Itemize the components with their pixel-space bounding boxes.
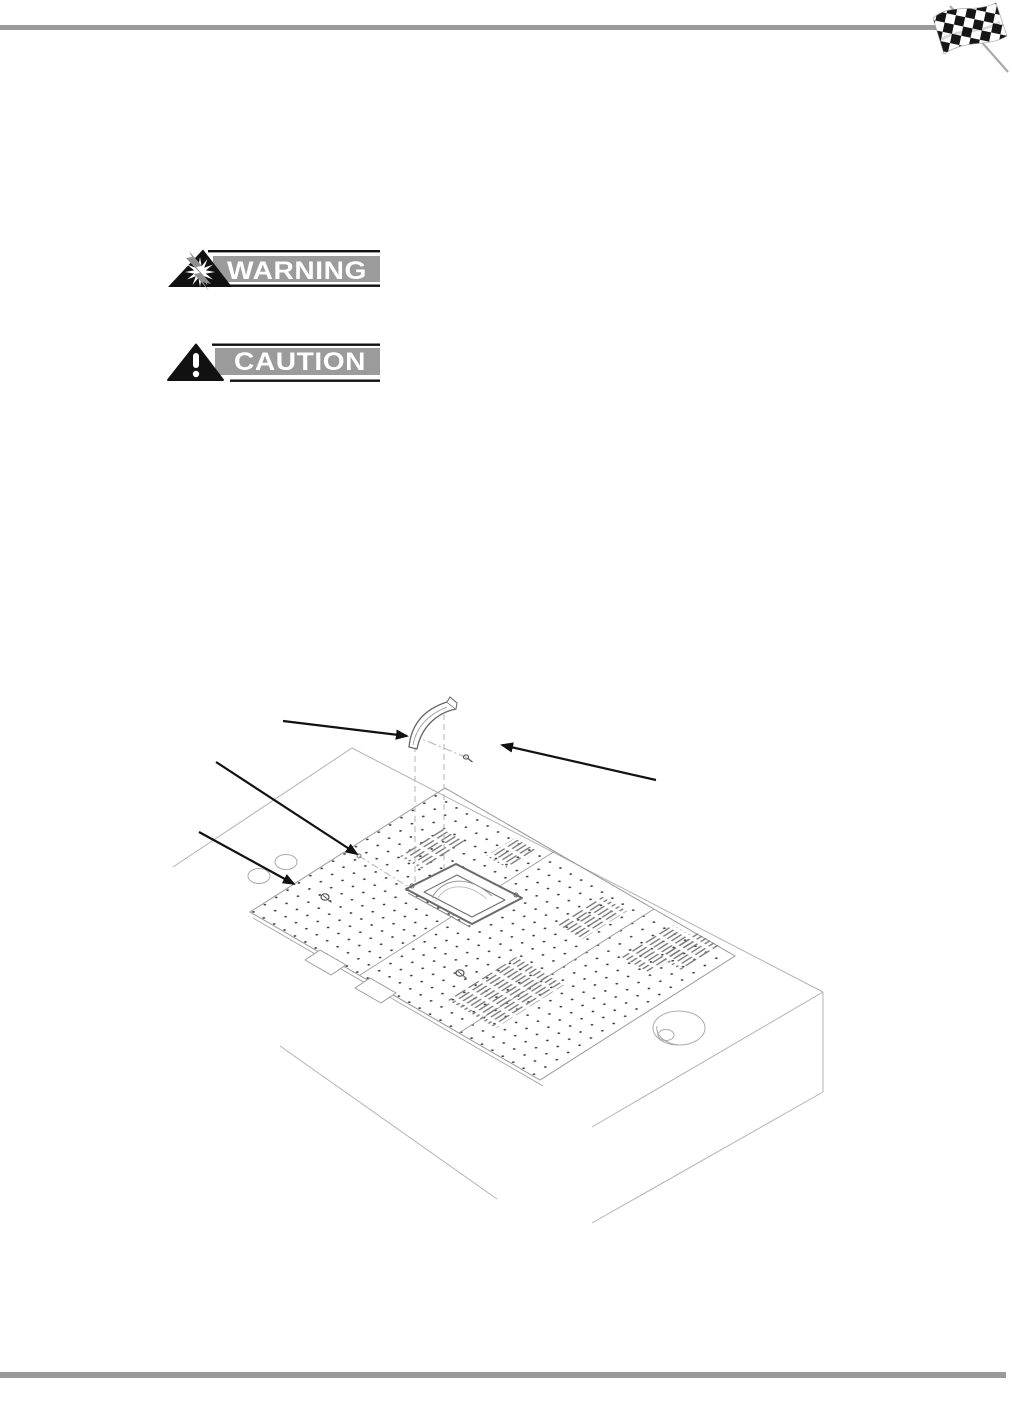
manual-page: WARNING CAUTION <box>0 0 1012 1416</box>
caution-badge: CAUTION <box>166 340 384 386</box>
caution-bottom-rule <box>230 380 380 382</box>
caution-top-rule <box>212 344 380 346</box>
warning-badge: WARNING <box>166 246 384 292</box>
top-rule <box>0 25 960 30</box>
mounting-screw <box>463 755 472 762</box>
flag-cloth <box>933 3 1007 54</box>
warning-label: WARNING <box>227 257 367 285</box>
cable-hole <box>653 1011 705 1045</box>
small-holes <box>248 855 297 884</box>
warning-top-rule <box>208 250 380 252</box>
callout-arrow-panel-edge <box>199 832 294 884</box>
exclamation-triangle-icon <box>168 345 223 381</box>
exploded-diagram <box>0 650 1012 1290</box>
checkered-flag-icon <box>930 0 1012 76</box>
caution-label: CAUTION <box>234 348 366 376</box>
callout-arrow-bracket <box>283 721 407 736</box>
callout-arrow-panel-hole <box>216 762 357 854</box>
bottom-rule <box>0 1372 1006 1378</box>
mounting-bracket <box>409 697 457 749</box>
callout-arrow-screw <box>502 745 656 780</box>
